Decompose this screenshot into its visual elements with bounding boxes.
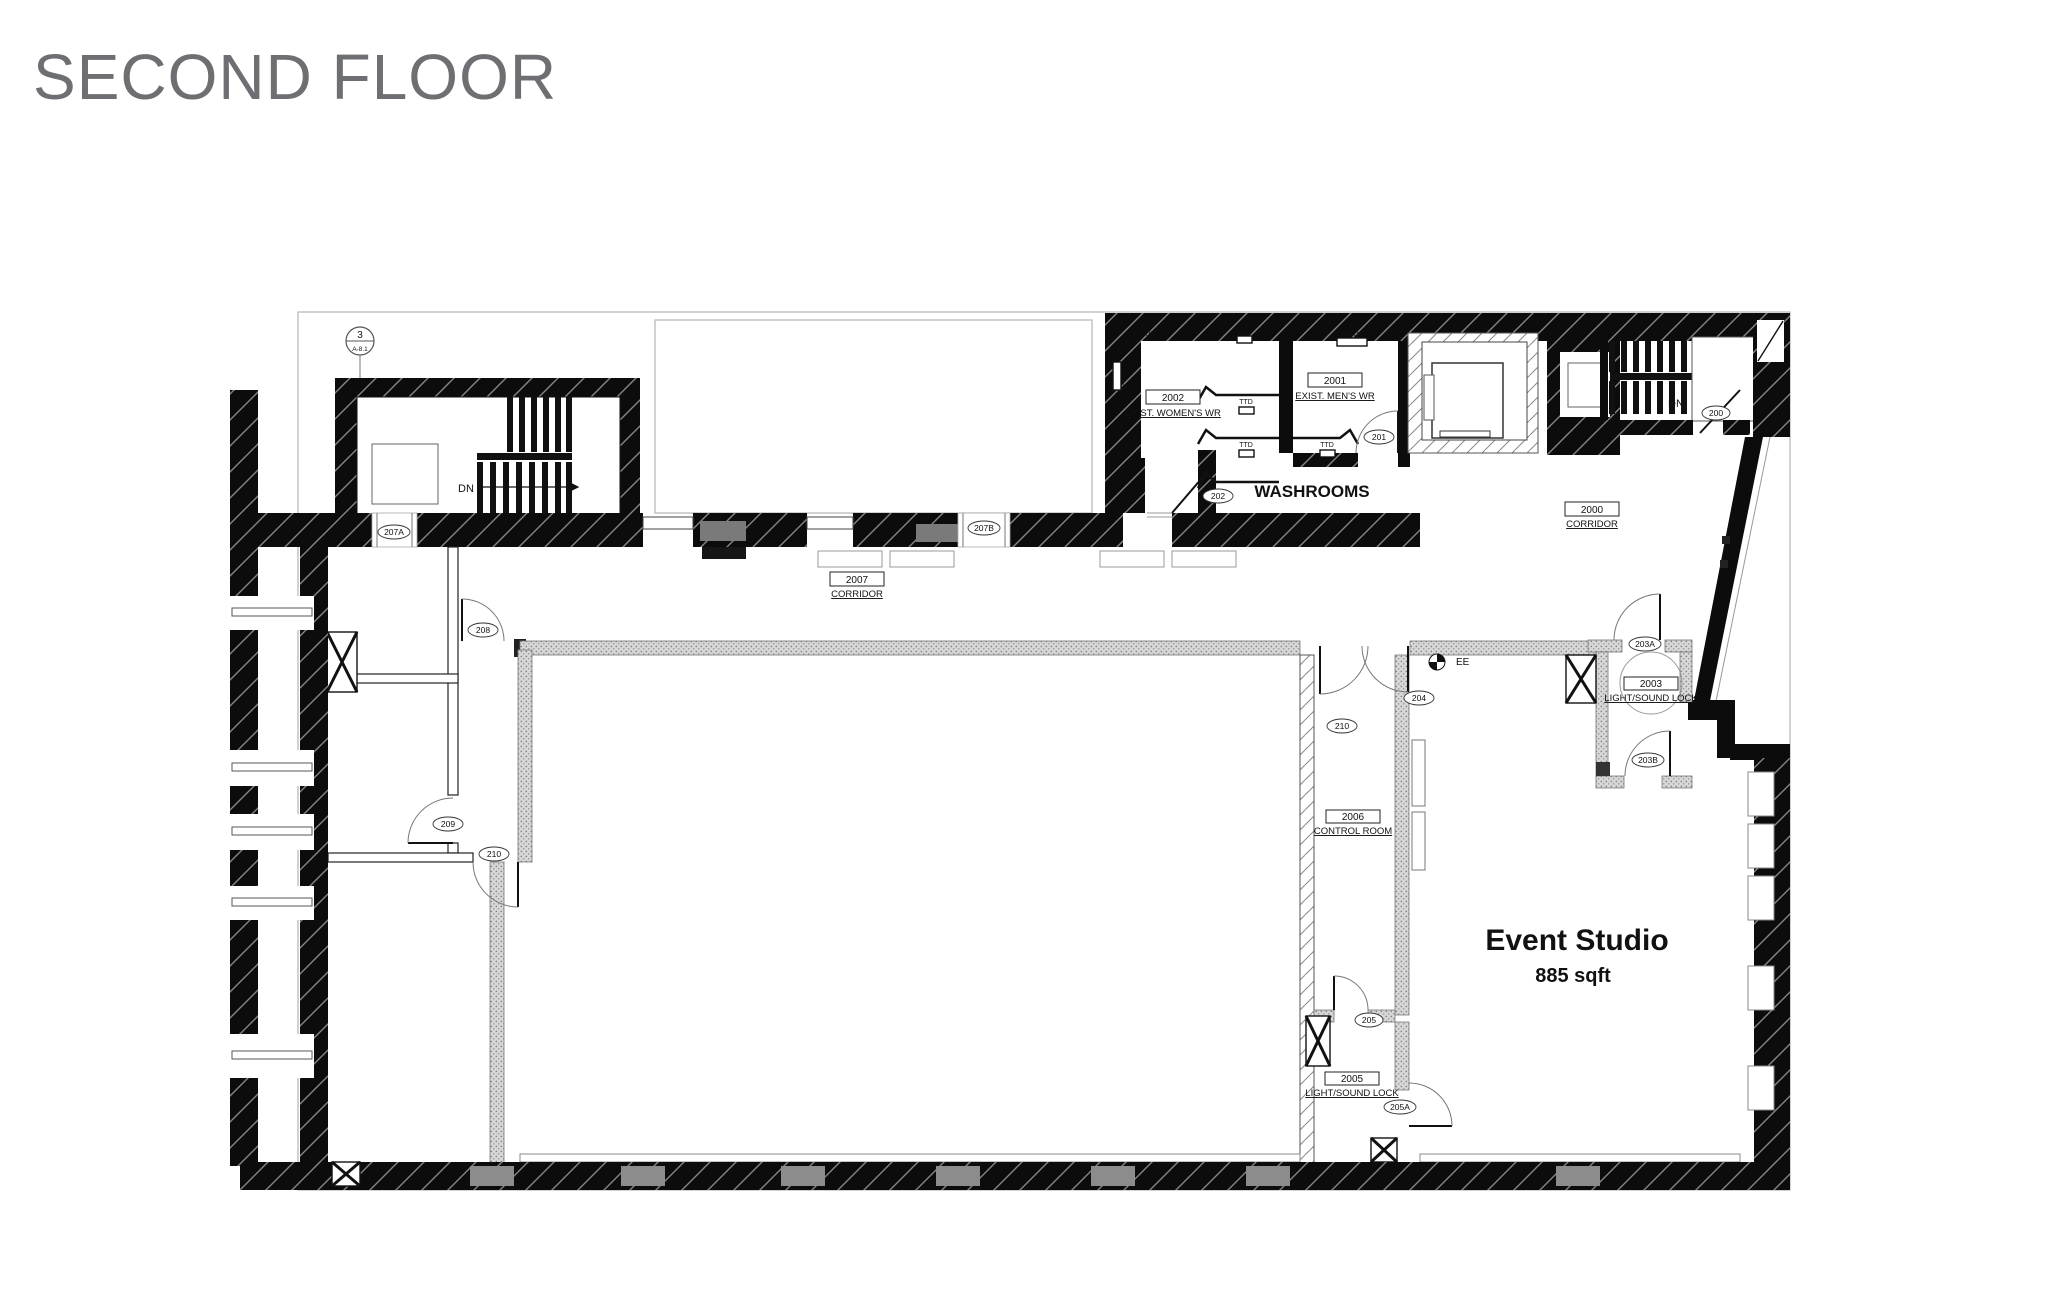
- svg-text:2003: 2003: [1640, 679, 1663, 690]
- door-203b: 203B: [1625, 731, 1670, 776]
- svg-text:EXIST. WOMEN'S WR: EXIST. WOMEN'S WR: [1125, 408, 1221, 419]
- room-label-2006: 2006 CONTROL ROOM: [1314, 810, 1392, 837]
- event-studio-label: Event Studio 885 sqft: [1485, 924, 1668, 987]
- door-tag-201: 201: [1372, 432, 1386, 442]
- column-x: [332, 1162, 360, 1186]
- section-sheet: A-8.1: [352, 346, 368, 353]
- svg-text:2007: 2007: [846, 575, 869, 586]
- wall-panel: [1412, 812, 1425, 870]
- fixture-sd2: SD: [1383, 331, 1393, 338]
- window: [228, 750, 314, 786]
- elevator: [1408, 333, 1538, 453]
- fixture-sd: SD: [1145, 329, 1155, 336]
- svg-text:LIGHT/SOUND LOCK: LIGHT/SOUND LOCK: [1305, 1088, 1399, 1099]
- svg-text:2005: 2005: [1341, 1074, 1364, 1085]
- door-tag-203b: 203B: [1638, 755, 1658, 765]
- svg-text:CORRIDOR: CORRIDOR: [831, 589, 883, 600]
- section-marker: 3 A-8.1: [346, 327, 374, 378]
- door-tag-207b: 207B: [974, 523, 994, 533]
- fixture-ttd2: TTD: [1239, 399, 1253, 406]
- room-label-2007: 2007 CORRIDOR: [830, 572, 884, 600]
- room-label-2005: 2005 LIGHT/SOUND LOCK: [1305, 1072, 1399, 1099]
- stair-dn-label: DN: [458, 483, 474, 495]
- west-rooms: 208 209 210: [327, 547, 518, 907]
- fixture-ttd4: TTD: [1320, 442, 1334, 449]
- svg-text:EXIST. MEN'S WR: EXIST. MEN'S WR: [1295, 391, 1375, 402]
- window: [228, 596, 314, 630]
- door-tag-208: 208: [476, 625, 490, 635]
- svg-text:2000: 2000: [1581, 505, 1604, 516]
- door-tag-210: 210: [487, 849, 501, 859]
- svg-text:2006: 2006: [1342, 812, 1365, 823]
- door-202: 202: [1147, 471, 1233, 517]
- section-number: 3: [357, 330, 363, 341]
- svg-text:2002: 2002: [1162, 393, 1185, 404]
- floor-plan-drawing: DN 3 A-8.1: [0, 0, 2048, 1290]
- fixture-towr: TOWR: [1341, 329, 1362, 336]
- washrooms-label: WASHROOMS: [1254, 482, 1369, 501]
- svg-text:CONTROL ROOM: CONTROL ROOM: [1314, 826, 1392, 837]
- window: [228, 1034, 314, 1078]
- door-tag-203a: 203A: [1635, 639, 1655, 649]
- ee-label: EE: [1456, 657, 1470, 668]
- door-207b: 207B: [958, 513, 1010, 547]
- studio-walls: [490, 639, 1596, 1164]
- door-tag-202: 202: [1211, 491, 1225, 501]
- door-209: 209: [408, 798, 463, 843]
- south-wall: [240, 1154, 1790, 1190]
- room-label-2000: 2000 CORRIDOR: [1565, 502, 1619, 530]
- room-2003: 203A 203B 2003 LIGHT/SOUND LOCK: [1566, 594, 1698, 788]
- corridor-north-wall: [240, 513, 1420, 567]
- ee-marker: EE: [1429, 654, 1470, 670]
- room-label-2001: 2001 EXIST. MEN'S WR: [1295, 373, 1375, 402]
- door-tag-205: 205: [1362, 1015, 1376, 1025]
- room-2005: 205 205A 2005 LIGHT/SOUND LOCK: [1305, 976, 1452, 1162]
- svg-text:LIGHT/SOUND LOCK: LIGHT/SOUND LOCK: [1604, 693, 1698, 704]
- west-exterior-wall: [228, 390, 328, 1166]
- stair2-dn-label: DN: [1668, 398, 1684, 410]
- wall-panel: [1412, 740, 1425, 806]
- floor-plan-page: SECOND FLOOR: [0, 0, 2048, 1290]
- column-x: [1566, 655, 1596, 703]
- fixture-ttd: TTD: [1238, 327, 1252, 334]
- column-x: [1371, 1138, 1397, 1162]
- door-tag-207a: 207A: [384, 527, 404, 537]
- door-tag-210-control: 210: [1335, 721, 1349, 731]
- event-studio-name: Event Studio: [1485, 924, 1668, 957]
- column-x: [327, 632, 357, 692]
- window: [228, 814, 314, 850]
- door-208: 208: [462, 599, 504, 641]
- door-207a: 207A: [378, 525, 410, 539]
- door-tag-204: 204: [1412, 693, 1426, 703]
- svg-text:CORRIDOR: CORRIDOR: [1566, 519, 1618, 530]
- svg-text:2001: 2001: [1324, 376, 1347, 387]
- door-205: 205: [1334, 976, 1383, 1027]
- column-x: [1306, 1016, 1330, 1066]
- door-201: 201: [1356, 411, 1398, 453]
- toilet-stalls: [1198, 387, 1358, 488]
- door-tag-209: 209: [441, 819, 455, 829]
- event-studio-area: 885 sqft: [1535, 965, 1611, 987]
- door-210-control: 210: [1320, 646, 1368, 733]
- fixture-ttd3: TTD: [1239, 442, 1253, 449]
- window: [228, 886, 314, 920]
- angled-east-wall: [1688, 437, 1790, 1166]
- door-tag-200: 200: [1709, 408, 1723, 418]
- door-tag-205a: 205A: [1390, 1102, 1410, 1112]
